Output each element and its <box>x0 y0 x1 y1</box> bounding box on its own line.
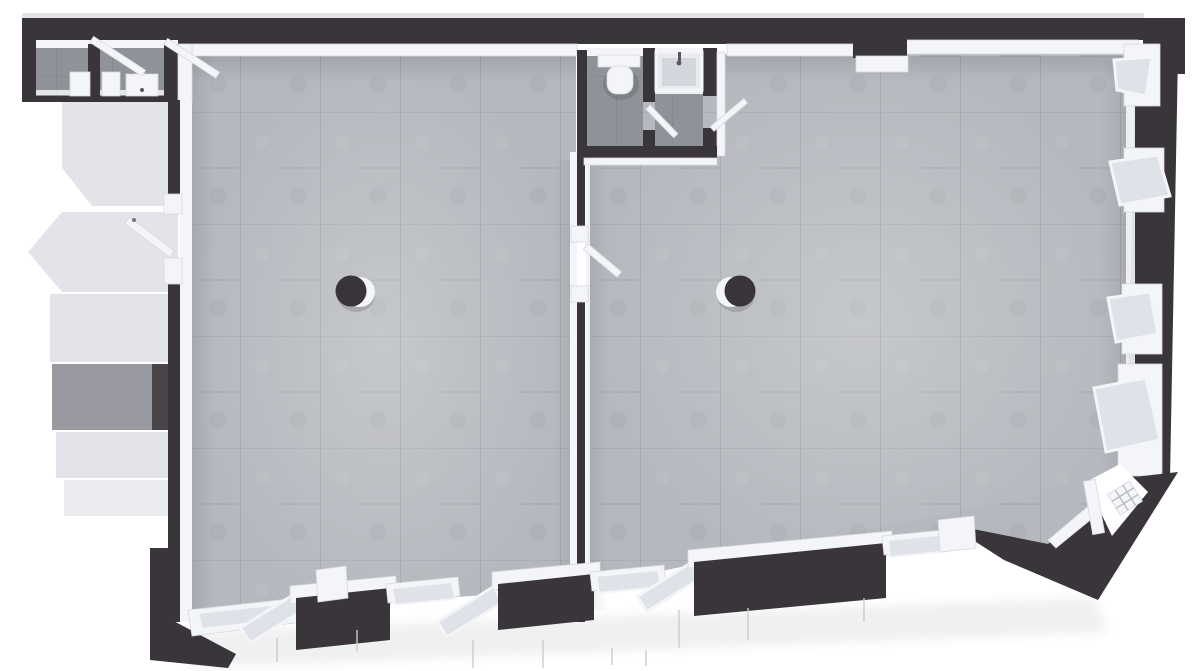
bathroom-south-wall <box>577 146 717 158</box>
west-wall-lower <box>168 262 180 622</box>
bathroom-east-trim <box>717 52 725 156</box>
round-column-west <box>336 276 367 307</box>
basin-faucet <box>140 88 144 92</box>
open-window-sash <box>1114 57 1152 96</box>
top-wall-jog-trim <box>856 56 908 72</box>
landing-slab <box>56 432 178 478</box>
door-frame <box>571 286 588 302</box>
bathroom-west-wall <box>577 50 587 156</box>
washbasin-cabinet <box>126 74 158 96</box>
floorplan-render <box>0 0 1200 671</box>
round-column-east <box>725 276 756 307</box>
toilet-cistern <box>598 55 640 67</box>
top-wall-jog-pier <box>853 18 907 58</box>
pier-block <box>938 516 976 552</box>
open-window-sash <box>1108 292 1158 342</box>
exterior-landing-west <box>28 102 178 516</box>
bathroom-block <box>577 48 748 165</box>
pier-block <box>316 566 348 602</box>
balcony-edge-wall <box>152 364 168 430</box>
landing-slab <box>28 212 178 292</box>
partition-trim-west <box>570 152 577 622</box>
bathroom-east-pier-upper <box>703 48 717 96</box>
toilet-bowl <box>607 66 633 94</box>
open-window-sash <box>1110 155 1170 205</box>
top-wall-trim-west <box>192 44 577 56</box>
shower-faucet <box>677 61 682 66</box>
balcony-slab <box>52 364 152 430</box>
cabinet <box>102 72 120 96</box>
door-handle <box>132 218 136 222</box>
floorplan-stage <box>0 0 1200 671</box>
shower-glass-divider <box>655 90 703 94</box>
wall-cap-highlight <box>22 13 1144 18</box>
top-wall-east <box>905 18 1145 40</box>
wall-shadow-west <box>192 56 214 622</box>
landing-slab <box>62 102 178 206</box>
bathroom-south-trim <box>584 158 717 165</box>
top-wall-trim-east <box>905 40 1138 54</box>
door-frame <box>571 226 588 242</box>
wall-shadow-divider-east <box>590 160 608 610</box>
door-frame <box>164 258 182 284</box>
service-cell-block <box>22 18 220 102</box>
door-frame <box>164 194 182 214</box>
shower-faucet-stem <box>678 52 681 61</box>
landing-slab <box>50 294 178 362</box>
cabinet <box>70 72 90 96</box>
wall-shadow-top-west <box>192 56 576 82</box>
bathroom-mid-pier-upper <box>643 48 655 102</box>
partition-trim-east <box>585 152 590 622</box>
top-wall-trim-mid <box>727 44 853 56</box>
west-hall-light <box>192 54 576 627</box>
west-wall-inner-trim <box>180 100 192 622</box>
landing-slab <box>64 480 178 516</box>
